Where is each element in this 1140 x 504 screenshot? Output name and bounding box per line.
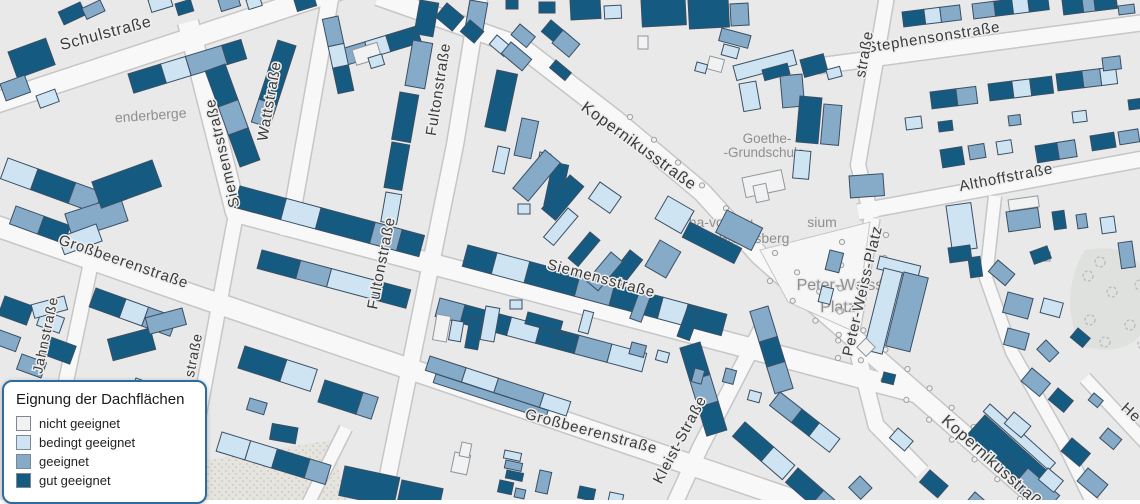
building — [905, 116, 922, 130]
tree-icon — [905, 366, 910, 371]
place-label: Goethe- — [743, 131, 792, 146]
building — [956, 86, 978, 105]
tree-icon — [772, 250, 777, 255]
building — [1076, 214, 1088, 229]
building — [1062, 0, 1084, 15]
building — [930, 89, 958, 109]
tree-icon — [813, 318, 818, 323]
tree-icon — [835, 355, 840, 360]
place-label: -Grundschule — [723, 145, 804, 160]
building — [570, 0, 601, 20]
tree-icon — [627, 114, 632, 119]
map-viewport: enderbergeGoethe--Grundschuleha-von-Susi… — [0, 0, 1140, 500]
building — [641, 0, 686, 27]
tree-icon — [927, 386, 932, 391]
tree-icon — [838, 286, 843, 291]
building — [1012, 0, 1030, 14]
building — [1057, 140, 1077, 160]
tree-icon — [836, 332, 841, 337]
tree-icon — [858, 358, 863, 363]
building — [793, 150, 811, 179]
building — [1118, 241, 1135, 269]
building — [1090, 132, 1116, 151]
legend-item-gut-geeignet: gut geeignet — [16, 473, 193, 488]
building — [514, 488, 526, 499]
building — [1028, 0, 1050, 12]
legend-item-bedingt-geeignet: bedingt geeignet — [16, 435, 193, 450]
building — [1082, 69, 1102, 88]
building — [902, 9, 926, 27]
building — [968, 256, 983, 277]
building — [1035, 143, 1059, 163]
building — [518, 204, 530, 214]
tree-icon — [839, 239, 844, 244]
legend-item-geeignet: geeignet — [16, 454, 193, 469]
building — [849, 174, 884, 198]
legend-swatch-bedingt-geeignet — [16, 435, 31, 450]
legend-swatch-gut-geeignet — [16, 473, 31, 488]
building — [1118, 129, 1140, 145]
building — [1030, 76, 1054, 96]
building — [510, 300, 522, 309]
legend-item-label: gut geeignet — [39, 473, 111, 488]
legend-swatch-nicht-geeignet — [16, 416, 31, 431]
building — [996, 140, 1013, 155]
building — [730, 3, 749, 26]
building — [506, 0, 518, 9]
tree-icon — [794, 270, 799, 275]
building — [882, 372, 896, 385]
building — [1128, 99, 1140, 110]
tree-icon — [926, 417, 931, 422]
building — [459, 442, 472, 458]
building — [1118, 4, 1135, 15]
building — [688, 0, 729, 29]
building — [940, 147, 965, 168]
building — [753, 183, 769, 202]
building — [938, 120, 953, 132]
building — [1072, 110, 1087, 123]
building — [498, 480, 514, 495]
tree-icon — [837, 309, 842, 314]
place-label: sium — [807, 214, 837, 230]
legend-item-label: geeignet — [39, 454, 89, 469]
building — [638, 36, 648, 49]
building — [994, 0, 1014, 16]
legend-item-label: nicht geeignet — [39, 416, 120, 431]
building — [1100, 216, 1116, 234]
tree-icon — [949, 405, 954, 410]
tree-icon — [699, 183, 704, 188]
building — [1052, 210, 1066, 229]
building — [988, 81, 1014, 101]
legend-swatch-geeignet — [16, 454, 31, 469]
tree-icon — [790, 298, 795, 303]
building — [796, 96, 822, 144]
building — [539, 2, 555, 13]
building — [1012, 79, 1032, 98]
tree-icon — [836, 338, 841, 343]
tree-icon — [904, 397, 909, 402]
building — [1094, 0, 1115, 11]
building — [924, 7, 942, 24]
building — [1056, 71, 1084, 91]
tree-icon — [767, 278, 772, 283]
building — [940, 5, 962, 22]
building — [1102, 56, 1121, 71]
legend-item-label: bedingt geeignet — [39, 435, 135, 450]
building — [604, 5, 622, 19]
building — [1006, 208, 1040, 232]
building — [1008, 115, 1021, 126]
tree-icon — [651, 137, 656, 142]
legend-panel: Eignung der Dachflächen nicht geeignet b… — [2, 380, 207, 504]
legend-title: Eignung der Dachflächen — [16, 391, 193, 408]
building — [968, 143, 986, 159]
legend-item-nicht-geeignet: nicht geeignet — [16, 416, 193, 431]
building — [972, 1, 996, 19]
building — [821, 104, 842, 145]
